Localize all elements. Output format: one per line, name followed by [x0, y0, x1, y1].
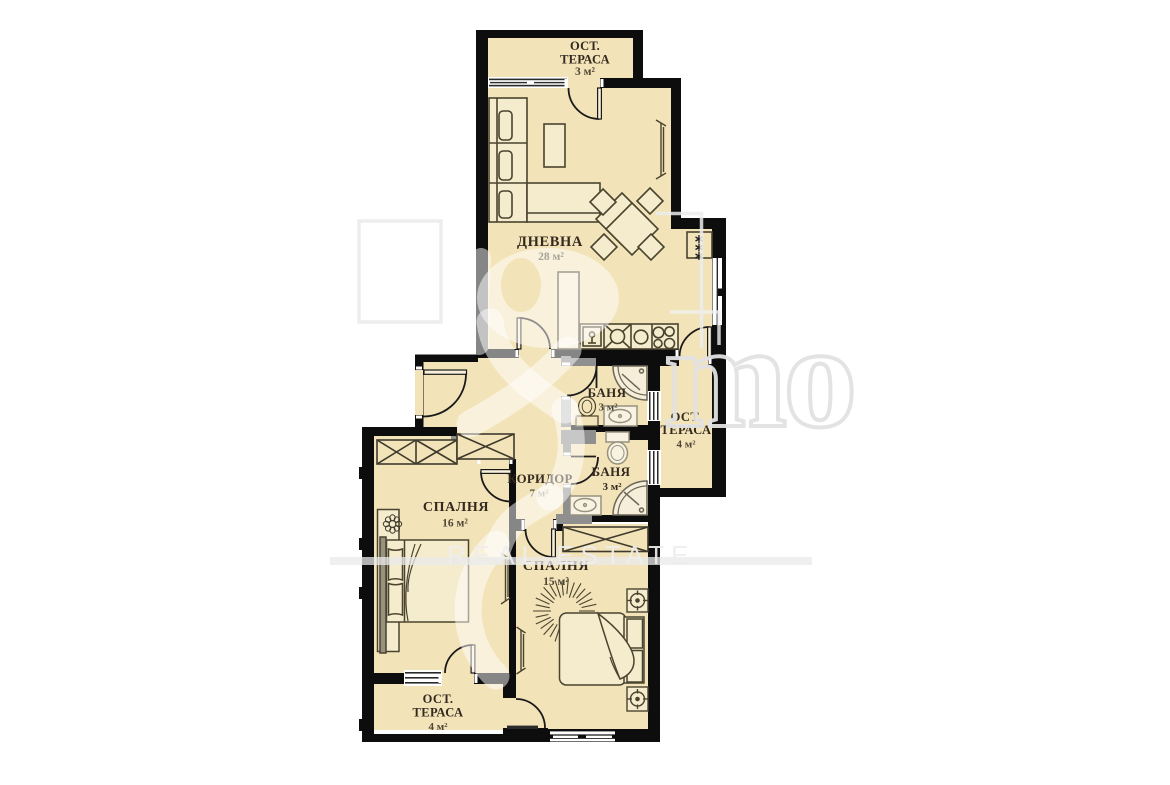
svg-text:REAL ESTATE: REAL ESTATE	[447, 540, 695, 570]
svg-text:ТЕРАСА: ТЕРАСА	[560, 53, 610, 67]
svg-text:4 м²: 4 м²	[428, 721, 448, 733]
svg-text:ОСТ.: ОСТ.	[423, 692, 454, 706]
svg-text:15 м²: 15 м²	[543, 576, 569, 588]
svg-text:ОСТ.: ОСТ.	[570, 39, 600, 53]
svg-text:3 м²: 3 м²	[602, 481, 622, 493]
svg-text:БАНЯ: БАНЯ	[588, 385, 627, 400]
svg-text:mo: mo	[664, 295, 853, 459]
svg-text:3 м²: 3 м²	[598, 402, 618, 414]
svg-text:ДНЕВНА: ДНЕВНА	[517, 234, 583, 250]
svg-text:3 м²: 3 м²	[575, 66, 595, 78]
svg-text:16 м²: 16 м²	[442, 518, 468, 530]
svg-text:БАНЯ: БАНЯ	[592, 464, 631, 479]
svg-text:ТЕРАСА: ТЕРАСА	[413, 706, 464, 720]
svg-text:СПАЛНЯ: СПАЛНЯ	[423, 500, 489, 515]
